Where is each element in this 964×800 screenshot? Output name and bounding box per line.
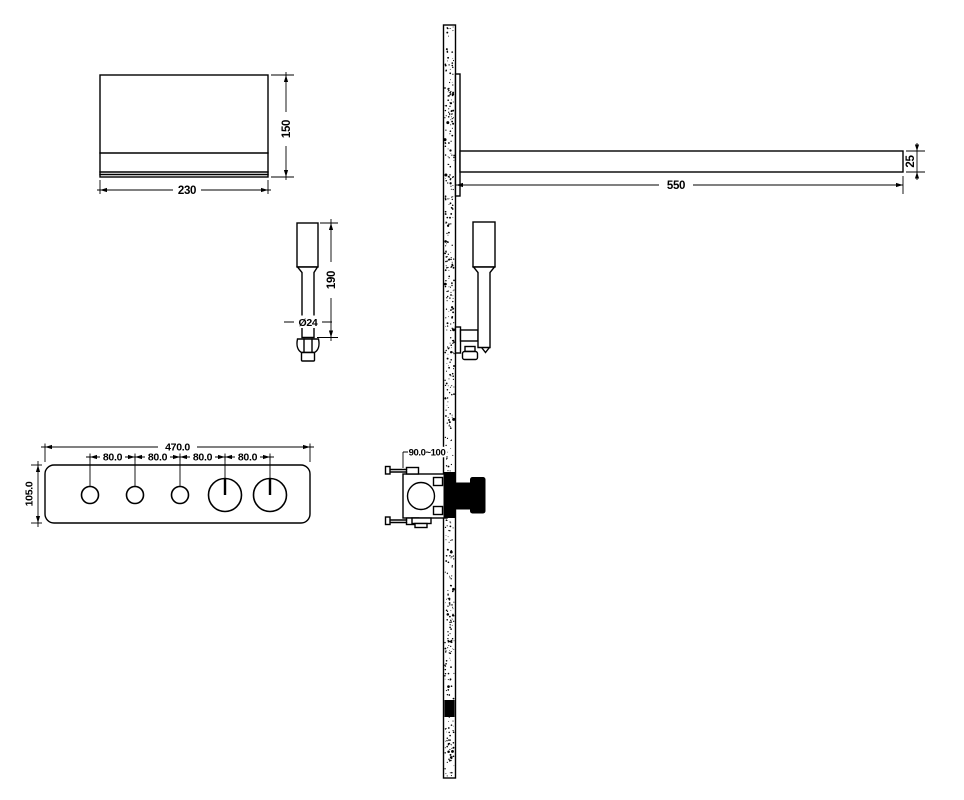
hand-shower-height-dim-label: 190 xyxy=(326,271,338,289)
wall-pass-through xyxy=(444,472,456,518)
valve-side-view: 90.0~100 xyxy=(386,447,486,528)
hand-shower-side-view xyxy=(456,222,496,360)
mounting-screw-top xyxy=(386,467,419,475)
handle-bottom-notch xyxy=(482,348,489,353)
wall-section xyxy=(443,25,455,778)
hose-connector xyxy=(297,339,319,361)
knob-3 xyxy=(172,487,189,504)
knob-2 xyxy=(127,487,144,504)
bracket-arm xyxy=(461,330,479,341)
panel-height-dim-label: 105.0 xyxy=(24,481,36,506)
valve-port-top xyxy=(434,478,443,486)
knob-spacing-dim-label-3: 80.0 xyxy=(193,452,213,464)
head-width-dim-label: 230 xyxy=(178,185,196,197)
head-shower-front-view: 150 230 xyxy=(97,72,294,197)
hand-shower-head xyxy=(297,223,318,267)
valve-port-bottom xyxy=(434,507,443,515)
hand-shower-front-view: Ø24 190 xyxy=(284,219,338,361)
shower-arm-bar xyxy=(460,151,903,172)
hand-shower-head-side xyxy=(473,222,495,267)
handle-diameter-dim-label: Ø24 xyxy=(299,317,318,329)
arm-thickness-dim-label: 25 xyxy=(905,155,917,168)
arm-wall-plate xyxy=(456,74,461,196)
technical-drawing: 550 25 150 230 xyxy=(0,0,964,800)
knob-spacing-dim-label-1: 80.0 xyxy=(103,452,123,464)
valve-cartridge xyxy=(408,483,435,510)
knob-spacing-dim-label-4: 80.0 xyxy=(238,452,258,464)
knob-1 xyxy=(82,487,99,504)
knob-stem xyxy=(456,483,471,510)
knob-handle xyxy=(470,477,486,514)
shower-arm-side-view: 550 25 xyxy=(456,74,926,196)
bracket-outlet xyxy=(463,347,478,360)
valve-bottom-bracket xyxy=(412,518,431,528)
panel-width-dim-label: 470.0 xyxy=(165,442,190,454)
bracket-wall-plate xyxy=(456,327,461,353)
head-shower-body xyxy=(100,75,268,177)
head-height-dim-label: 150 xyxy=(281,120,293,138)
valve-depth-dim-label: 90.0~100 xyxy=(409,448,446,459)
arm-length-dim-label: 550 xyxy=(667,180,685,192)
control-panel-front-view: 80.0 80.0 80.0 80.0 470.0 105.0 xyxy=(23,441,314,527)
wall-solid-band xyxy=(444,700,454,717)
